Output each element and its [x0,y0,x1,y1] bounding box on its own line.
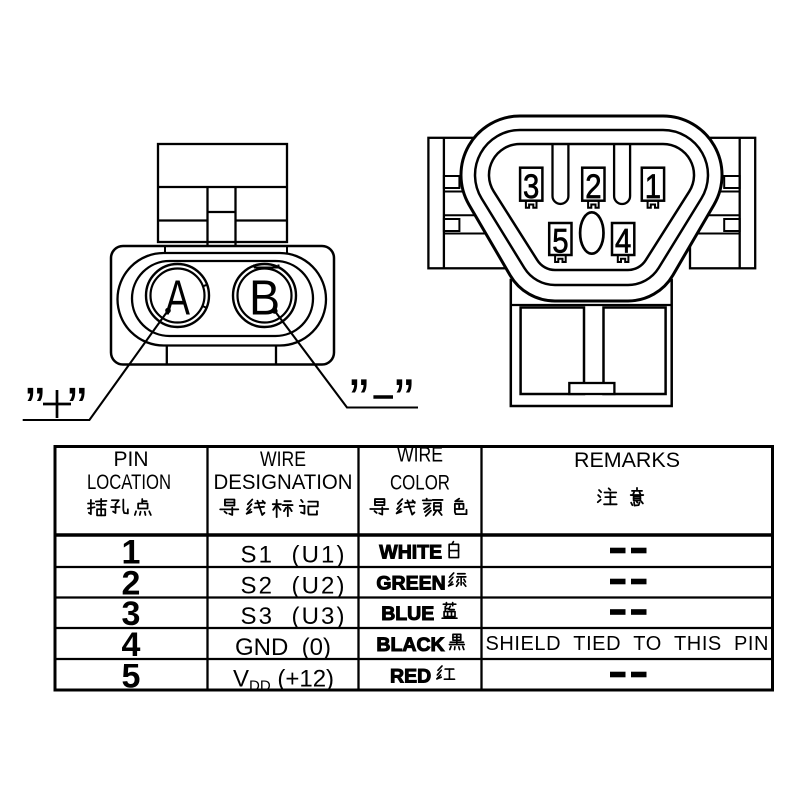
svg-text:A: A [165,272,190,326]
svg-text:”: ” [394,368,413,433]
svg-text:GREEN: GREEN [376,573,445,595]
svg-text:WIRE: WIRE [397,444,443,467]
svg-text:”: ” [67,376,86,441]
svg-text:S1 (U1): S1 (U1) [241,542,345,569]
svg-text:PIN: PIN [113,448,148,471]
svg-text:RED: RED [390,666,431,688]
svg-text:S2 (U2): S2 (U2) [241,573,345,600]
svg-text:WHITE: WHITE [379,542,442,564]
svg-text:”: ” [349,368,368,433]
svg-text:LOCATION: LOCATION [87,471,171,494]
svg-text:S3 (U3): S3 (U3) [241,603,345,630]
svg-text:GND (0): GND (0) [235,634,331,661]
svg-text:BLACK: BLACK [376,634,444,656]
svg-text:WIRE: WIRE [260,448,306,471]
svg-text:COLOR: COLOR [390,472,450,495]
svg-text:3: 3 [523,167,539,206]
svg-text:B: B [249,271,280,325]
svg-text:VDD (+12): VDD (+12) [233,666,334,695]
svg-text:5: 5 [552,221,568,260]
svg-text:5: 5 [122,658,141,696]
svg-text:REMARKS: REMARKS [574,449,680,472]
svg-text:1: 1 [645,167,661,206]
svg-text:2: 2 [585,167,601,206]
svg-text:DESIGNATION: DESIGNATION [214,471,353,494]
svg-text:4: 4 [615,221,631,260]
svg-text:BLUE: BLUE [381,603,434,625]
svg-text:SHIELD TIED TO THIS PIN: SHIELD TIED TO THIS PIN [486,633,769,655]
svg-text:”: ” [25,376,44,441]
